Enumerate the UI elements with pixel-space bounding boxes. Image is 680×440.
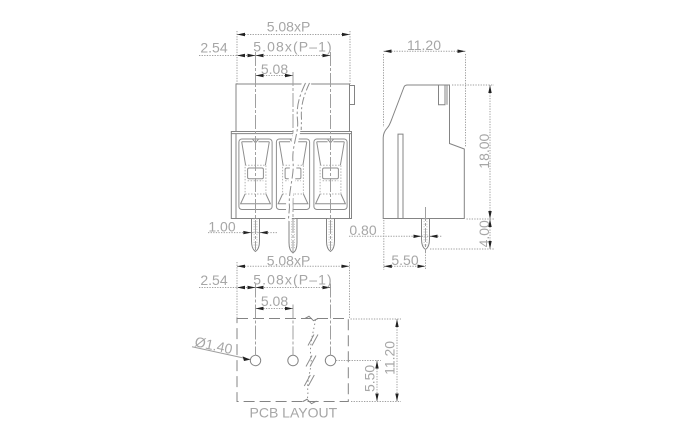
svg-text:1.00: 1.00 (208, 219, 235, 235)
svg-text:5.08xP: 5.08xP (267, 18, 311, 34)
svg-text:Ø1.40: Ø1.40 (193, 333, 234, 357)
svg-text:5.50: 5.50 (361, 365, 377, 392)
svg-text:5.08x(P–1): 5.08x(P–1) (253, 272, 332, 288)
svg-text:5.08xP: 5.08xP (267, 252, 311, 268)
svg-text:PCB LAYOUT: PCB LAYOUT (250, 405, 338, 421)
svg-text:11.20: 11.20 (407, 37, 441, 53)
svg-text:5.08x(P–1): 5.08x(P–1) (253, 38, 332, 54)
svg-text:18.00: 18.00 (476, 133, 492, 168)
svg-text:2.54: 2.54 (200, 272, 227, 288)
svg-text:5.50: 5.50 (391, 252, 418, 268)
svg-text:0.80: 0.80 (349, 222, 376, 238)
svg-text:4.00: 4.00 (476, 220, 492, 247)
svg-text:2.54: 2.54 (200, 39, 227, 55)
svg-text:5.08: 5.08 (261, 61, 288, 77)
svg-text:11.20: 11.20 (382, 341, 398, 375)
svg-text:5.08: 5.08 (261, 293, 288, 309)
